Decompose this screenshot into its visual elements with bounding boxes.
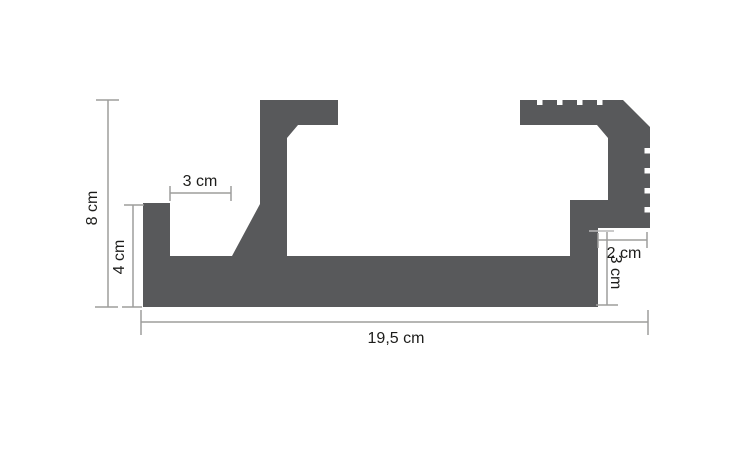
dim-tab-height-label: 4 cm <box>110 232 130 282</box>
dim-top-slot-label: 3 cm <box>170 172 230 192</box>
dim-overall-height-label: 8 cm <box>83 183 103 233</box>
profile-diagram: 8 cm 4 cm 3 cm 19,5 cm 2 cm 3 cm <box>0 0 756 467</box>
profile-silhouette <box>143 100 650 307</box>
dim-notch-height-label: 3 cm <box>605 247 625 297</box>
dim-overall-width-label: 19,5 cm <box>356 329 436 349</box>
